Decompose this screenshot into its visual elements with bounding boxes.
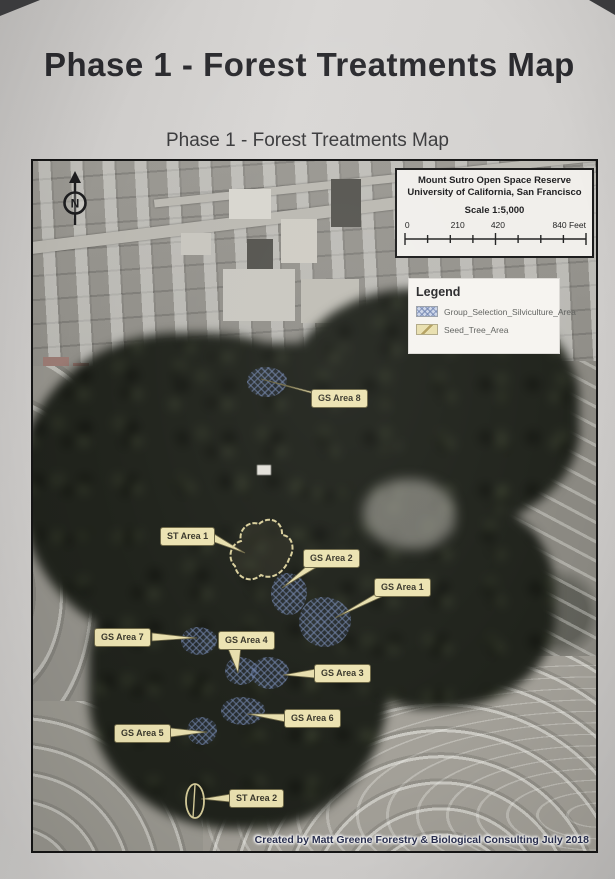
map-label-gs-area-6: GS Area 6	[284, 709, 341, 728]
legend-item-label: Group_Selection_Silviculture_Area	[444, 307, 576, 317]
institution-name: University of California, San Francisco	[403, 187, 586, 199]
scale-tick-0: 0	[405, 220, 410, 230]
map-label-gs-area-2: GS Area 2	[303, 549, 360, 568]
seed-tree-area-1-outline	[230, 520, 292, 580]
legend-item-label: Seed_Tree_Area	[444, 325, 508, 335]
map-label-gs-area-3: GS Area 3	[314, 664, 371, 683]
scale-tick-210: 210	[451, 220, 465, 230]
reserve-name: Mount Sutro Open Space Reserve	[403, 175, 586, 187]
treatment-map: GS Area 8 ST Area 1 GS Area 2 GS Area 1 …	[31, 159, 598, 853]
map-info-box: Mount Sutro Open Space Reserve Universit…	[395, 168, 594, 258]
map-label-st-area-2: ST Area 2	[229, 789, 284, 808]
scale-tick-420: 420	[491, 220, 505, 230]
map-label-gs-area-7: GS Area 7	[94, 628, 151, 647]
seed-tree-swatch-icon	[416, 324, 438, 335]
map-label-st-area-1: ST Area 1	[160, 527, 215, 546]
north-arrow-icon: N	[55, 167, 95, 231]
photographed-paper: Phase 1 - Forest Treatments Map Phase 1 …	[0, 0, 615, 879]
map-credit: Created by Matt Greene Forestry & Biolog…	[255, 834, 589, 846]
map-title: Phase 1 - Forest Treatments Map	[0, 130, 615, 152]
legend-item-group-selection: Group_Selection_Silviculture_Area	[416, 306, 552, 317]
scale-tick-840: 840 Feet	[552, 220, 586, 230]
page-title: Phase 1 - Forest Treatments Map	[44, 46, 604, 84]
map-label-gs-area-8: GS Area 8	[311, 389, 368, 408]
map-label-gs-area-5: GS Area 5	[114, 724, 171, 743]
scale-text: Scale 1:5,000	[403, 205, 586, 216]
map-label-gs-area-4: GS Area 4	[218, 631, 275, 650]
scale-bar-ruler	[403, 231, 588, 245]
legend-item-seed-tree: Seed_Tree_Area	[416, 324, 552, 335]
scale-bar: 0 210 420 840 Feet	[403, 220, 586, 248]
map-label-gs-area-1: GS Area 1	[374, 578, 431, 597]
group-selection-swatch-icon	[416, 306, 438, 317]
legend-title: Legend	[416, 285, 552, 299]
callout-leaders-and-outlines	[33, 161, 598, 853]
map-legend: Legend Group_Selection_Silviculture_Area…	[408, 278, 560, 354]
svg-text:N: N	[71, 197, 80, 211]
